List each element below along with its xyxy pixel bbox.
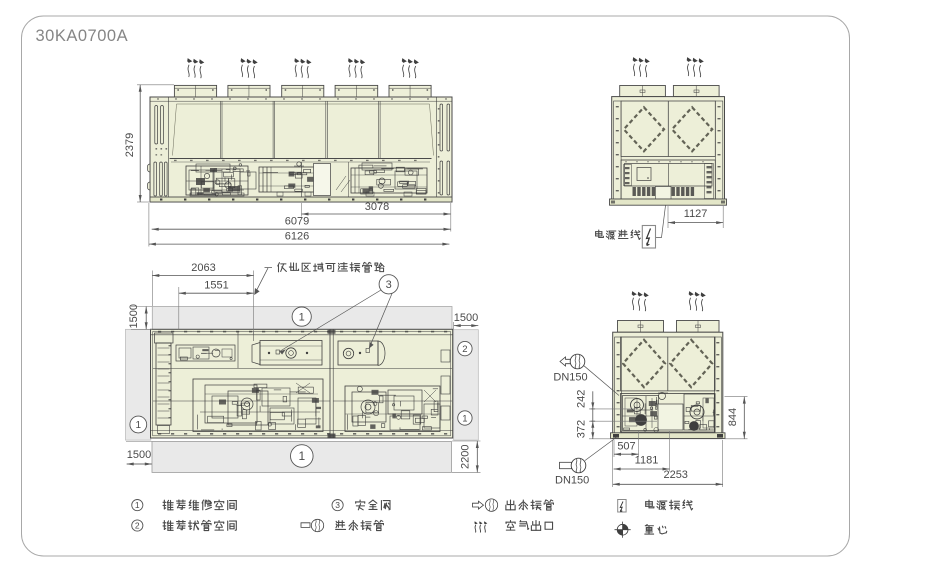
svg-text:DN150: DN150 <box>553 372 587 384</box>
svg-text:1: 1 <box>136 420 142 431</box>
svg-text:1: 1 <box>299 311 305 323</box>
svg-text:1551: 1551 <box>204 280 228 292</box>
svg-text:1181: 1181 <box>635 455 659 467</box>
svg-text:2: 2 <box>135 520 140 530</box>
svg-text:2: 2 <box>462 344 467 355</box>
svg-text:6079: 6079 <box>285 216 309 228</box>
svg-text:3: 3 <box>335 500 340 510</box>
svg-text:1: 1 <box>135 500 140 510</box>
svg-text:DN150: DN150 <box>555 475 589 487</box>
svg-text:2200: 2200 <box>460 444 472 468</box>
svg-text:1500: 1500 <box>127 449 151 461</box>
svg-text:372: 372 <box>576 420 588 438</box>
svg-text:2253: 2253 <box>663 469 687 481</box>
svg-text:6126: 6126 <box>285 231 309 243</box>
svg-text:1500: 1500 <box>128 304 140 328</box>
svg-text:3: 3 <box>386 279 392 291</box>
svg-text:1127: 1127 <box>684 208 708 220</box>
svg-text:507: 507 <box>617 440 635 452</box>
svg-text:1: 1 <box>462 413 467 424</box>
svg-text:2379: 2379 <box>124 133 136 157</box>
svg-text:30KA0700A: 30KA0700A <box>36 27 129 45</box>
svg-text:2063: 2063 <box>191 262 215 274</box>
svg-text:844: 844 <box>727 408 739 426</box>
svg-text:1500: 1500 <box>454 312 478 324</box>
svg-text:242: 242 <box>576 390 588 408</box>
svg-text:1: 1 <box>298 449 305 463</box>
svg-text:3078: 3078 <box>365 201 389 213</box>
